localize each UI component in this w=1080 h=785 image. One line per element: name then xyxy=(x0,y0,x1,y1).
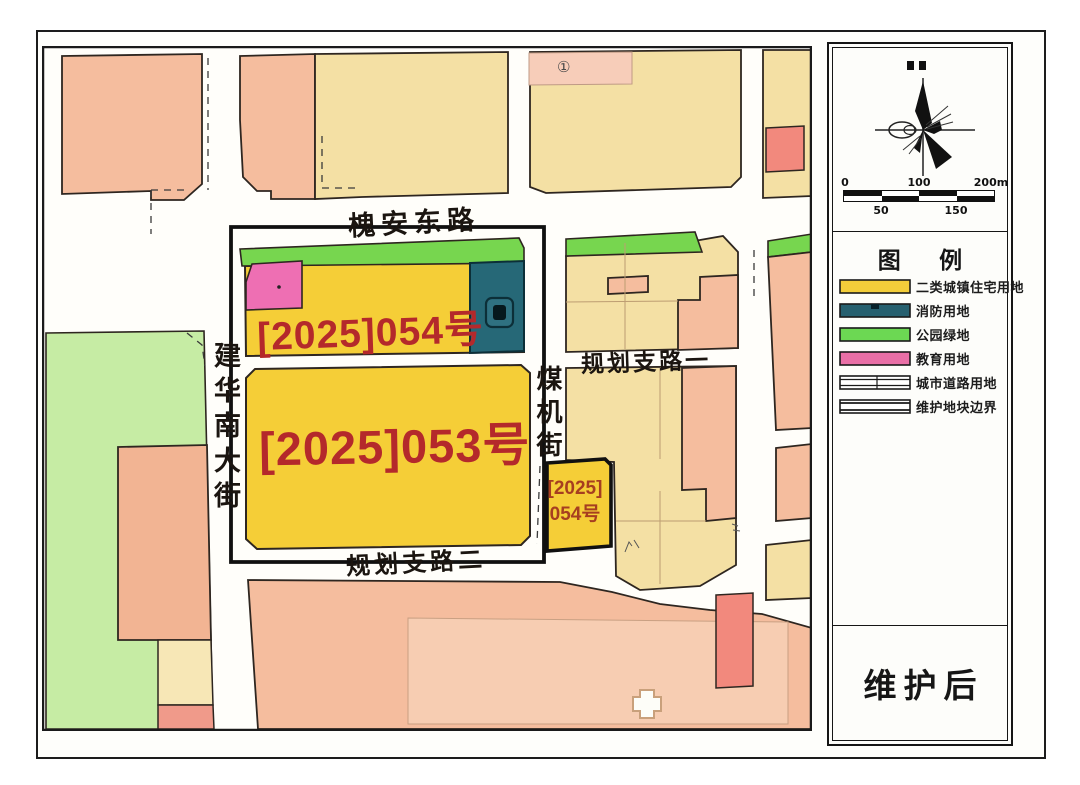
map-key-panel-inner: 0 100 200m 50 150 图 例 二类城镇住宅用地 xyxy=(832,47,1008,741)
parcel-top-d-strip xyxy=(529,52,632,85)
salmon-right-edge-1 xyxy=(768,252,812,430)
legend-swatch-residential xyxy=(839,279,911,294)
scale-bar-segments xyxy=(843,190,995,202)
legend-label: 消防用地 xyxy=(916,301,970,320)
parcel-top-right-f xyxy=(763,50,812,198)
scale-bar: 0 100 200m 50 150 xyxy=(833,176,1013,226)
parcel-top-c xyxy=(315,52,508,199)
parcel-top-left-a xyxy=(62,54,202,200)
parcel-number-054-small: [2025] 054号 xyxy=(538,476,612,527)
road-label-huaian-east: 槐安东路 xyxy=(347,198,481,244)
legend-item-boundary: 维护地块边界 xyxy=(839,399,1024,414)
salmon-small-east xyxy=(608,276,648,294)
circled-number-mark: ① xyxy=(557,58,570,76)
education-parcel-dot xyxy=(277,285,281,289)
legend-item-education: 教育用地 xyxy=(839,351,1024,366)
legend-swatch-boundary xyxy=(839,399,911,414)
compass-north-mark xyxy=(919,61,926,70)
parcel-number-053: [2025]053号 xyxy=(258,406,530,480)
legend-label: 公园绿地 xyxy=(916,325,970,344)
legend-label: 维护地块边界 xyxy=(916,397,997,416)
red-block-left-bottom xyxy=(158,705,214,729)
planning-map-page: 槐安东路 建华南大街 煤机街 规划支路一 规划支路二 [2025]054号 [2… xyxy=(0,0,1080,785)
stamp-section: 维护后 xyxy=(833,625,1007,740)
legend-swatch-road xyxy=(839,375,911,390)
legend: 二类城镇住宅用地 消防用地 公园绿地 xyxy=(839,279,1024,414)
scale-label: 50 xyxy=(873,204,888,217)
land-use-map xyxy=(42,46,812,731)
tan-block-left-bottom xyxy=(158,640,213,705)
legend-title: 图 例 xyxy=(833,241,1007,275)
legend-item-park: 公园绿地 xyxy=(839,327,1024,342)
map-key-panel: 0 100 200m 50 150 图 例 二类城镇住宅用地 xyxy=(827,42,1013,746)
fire-station-icon-core xyxy=(493,305,506,320)
road-label-planned-branch-2: 规划支路二 xyxy=(345,539,487,581)
legend-label: 二类城镇住宅用地 xyxy=(916,277,1024,296)
red-block-top-right xyxy=(766,126,804,172)
scale-label: 150 xyxy=(945,204,968,217)
road-label-meiji-street: 煤机街 xyxy=(530,365,567,464)
legend-label: 教育用地 xyxy=(916,349,970,368)
legend-swatch-fire xyxy=(839,303,911,318)
salmon-block-left xyxy=(118,445,211,640)
legend-item-fire: 消防用地 xyxy=(839,303,1024,318)
compass-rose xyxy=(833,48,1013,178)
parcel-number-054: [2025]054号 xyxy=(256,298,485,362)
tan-right-edge xyxy=(766,540,812,600)
parcel-number-small-line2: 054号 xyxy=(550,504,601,525)
legend-label: 城市道路用地 xyxy=(916,373,997,392)
scale-label: 200m xyxy=(974,176,1008,189)
parcel-top-left-b xyxy=(240,54,315,199)
road-label-planned-branch-1: 规划支路一 xyxy=(580,341,711,380)
education-parcel xyxy=(246,261,302,310)
scale-label: 100 xyxy=(908,176,931,189)
legend-item-road: 城市道路用地 xyxy=(839,375,1024,390)
scale-label: 0 xyxy=(841,176,849,189)
maintenance-stamp: 维护后 xyxy=(857,659,984,707)
salmon-right-edge-2 xyxy=(776,444,812,521)
legend-item-residential: 二类城镇住宅用地 xyxy=(839,279,1024,294)
legend-swatch-education xyxy=(839,351,911,366)
parcel-number-small-line1: [2025] xyxy=(548,478,603,499)
compass-north-mark xyxy=(907,61,914,70)
compass-southeast-blade xyxy=(923,130,952,169)
panel-divider xyxy=(833,231,1007,232)
legend-swatch-park xyxy=(839,327,911,342)
road-label-jianhua-south: 建华南大街 xyxy=(206,341,245,516)
red-block-bottom xyxy=(716,593,753,688)
